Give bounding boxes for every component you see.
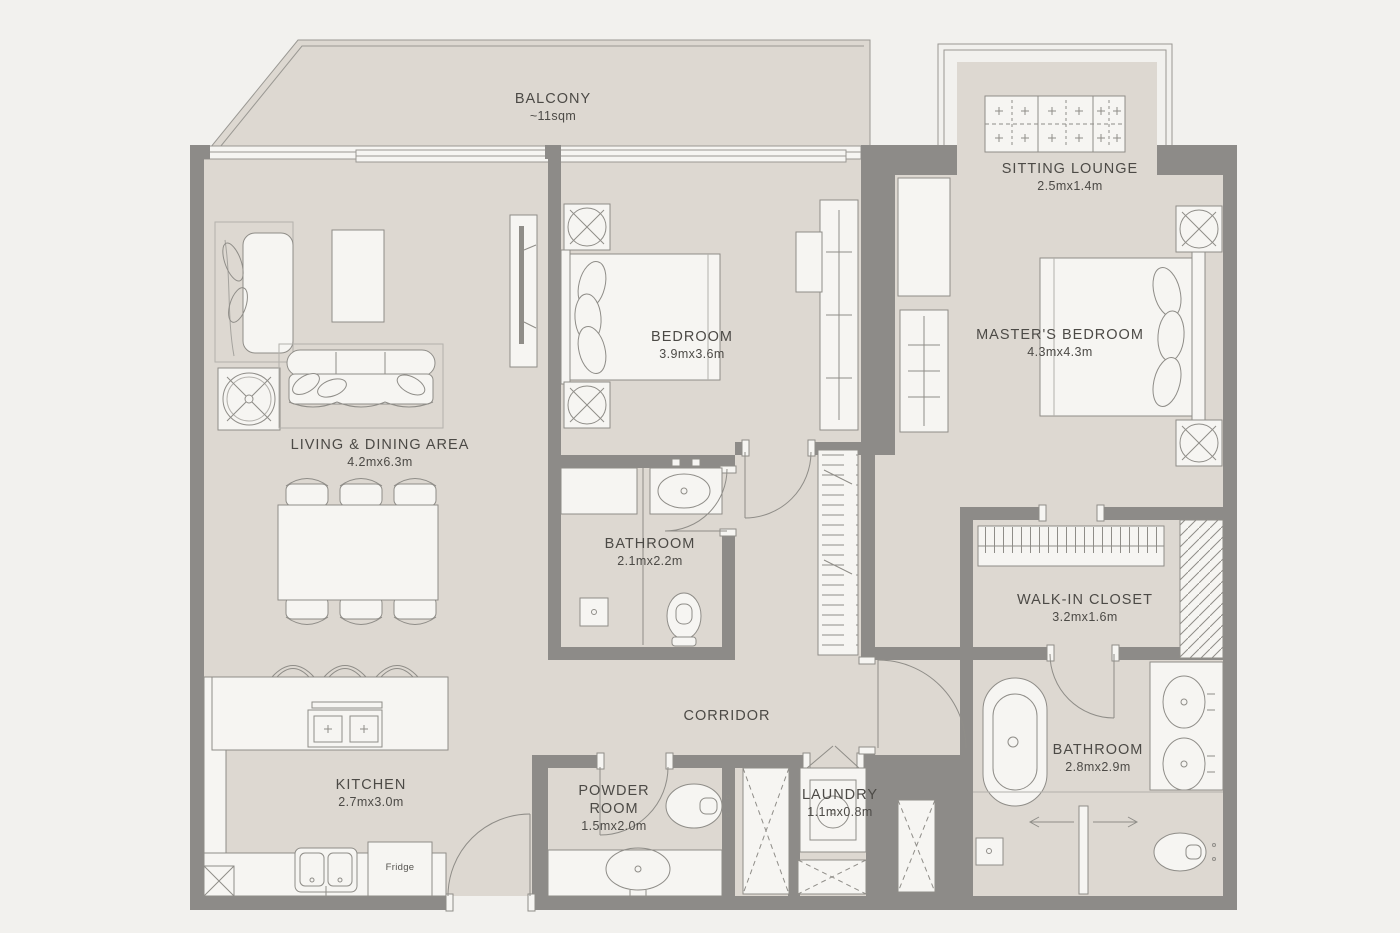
toilet bbox=[667, 593, 701, 646]
master-bathroom-label: BATHROOM 2.8mx2.9m bbox=[1053, 741, 1144, 776]
nightstand-lamp bbox=[564, 382, 610, 428]
shower-drain bbox=[580, 598, 608, 626]
nightstand-lamp bbox=[564, 204, 610, 250]
sitting-lounge-label: SITTING LOUNGE 2.5mx1.4m bbox=[1002, 160, 1138, 195]
fridge-label: Fridge bbox=[386, 862, 415, 873]
nightstand-lamp bbox=[1176, 420, 1222, 466]
bathtub bbox=[983, 678, 1047, 806]
closet-rail-side bbox=[1180, 520, 1223, 658]
powder-room-label: POWDER ROOM 1.5mx2.0m bbox=[559, 782, 669, 835]
bedroom-cabinet bbox=[796, 232, 822, 292]
master-bed-headboard bbox=[1192, 250, 1205, 420]
master-cabinet bbox=[898, 178, 950, 296]
dining-table bbox=[278, 505, 438, 600]
nightstand-lamp bbox=[1176, 206, 1222, 252]
corridor-wardrobe bbox=[818, 450, 858, 655]
kitchen-label: KITCHEN 2.7mx3.0m bbox=[336, 776, 407, 811]
shower-tray bbox=[561, 468, 637, 514]
shared-bathroom-label: BATHROOM 2.1mx2.2m bbox=[605, 535, 696, 570]
service-cabinet bbox=[898, 800, 935, 892]
floor-plan: BALCONY ~11sqm SITTING LOUNGE 2.5mx1.4m … bbox=[0, 0, 1400, 933]
kitchen-sink bbox=[295, 848, 357, 896]
shower-drain bbox=[976, 838, 1003, 865]
bedroom-wardrobe bbox=[820, 200, 858, 430]
laundry-label: LAUNDRY 1.1mx0.8m bbox=[802, 786, 878, 821]
walk-in-closet-label: WALK-IN CLOSET 3.2mx1.6m bbox=[1017, 591, 1153, 626]
double-vanity bbox=[1150, 662, 1223, 790]
linen-cabinet bbox=[743, 768, 789, 894]
balcony-label: BALCONY ~11sqm bbox=[515, 90, 591, 125]
bedroom-label: BEDROOM 3.9mx3.6m bbox=[651, 328, 733, 363]
floor-plan-drawing bbox=[0, 0, 1400, 933]
sitting-lounge-sofa bbox=[985, 96, 1125, 152]
closet-rail-top bbox=[978, 526, 1164, 566]
coffee-table bbox=[332, 230, 384, 322]
side-table-lamp bbox=[218, 368, 280, 430]
laundry-cabinet bbox=[798, 860, 866, 894]
tv-unit bbox=[510, 215, 537, 367]
master-closet bbox=[900, 310, 948, 432]
masters-bedroom-label: MASTER'S BEDROOM 4.3mx4.3m bbox=[976, 326, 1144, 361]
kitchen-island bbox=[212, 677, 448, 750]
powder-vanity bbox=[548, 848, 722, 898]
corridor-label: CORRIDOR bbox=[684, 707, 771, 725]
corner-cabinet bbox=[204, 866, 234, 896]
bed-headboard bbox=[561, 250, 570, 384]
living-dining-label: LIVING & DINING AREA 4.2mx6.3m bbox=[291, 436, 470, 471]
